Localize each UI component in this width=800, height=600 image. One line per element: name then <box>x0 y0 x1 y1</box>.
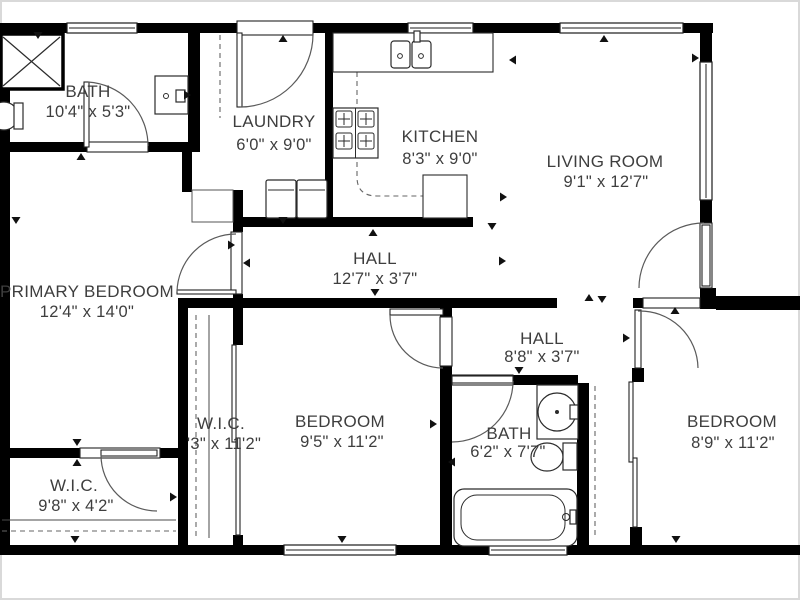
wall-segment <box>0 545 284 555</box>
wall-segment <box>0 448 80 458</box>
marker-icon <box>73 439 82 446</box>
window-icon <box>700 62 712 200</box>
room-dims-bath-top: 10'4" x 5'3" <box>46 103 131 121</box>
floor-plan: BATH 10'4" x 5'3" LAUNDRY 6'0" x 9'0" KI… <box>0 0 800 600</box>
wall-segment <box>182 152 192 192</box>
wall-segment <box>513 375 578 385</box>
wall-segment <box>700 288 716 309</box>
room-label-bath-top: BATH <box>65 82 110 101</box>
marker-icon <box>170 493 177 502</box>
wall-segment <box>0 23 67 33</box>
marker-icon <box>338 536 347 543</box>
wall-segment <box>700 23 712 62</box>
room-dims-wic-center: '3" x 11'2" <box>187 435 261 453</box>
floor-plan-drawing: BATH 10'4" x 5'3" LAUNDRY 6'0" x 9'0" KI… <box>0 0 800 600</box>
washer-icon <box>266 180 296 218</box>
counter-icon <box>423 175 467 218</box>
wall-segment <box>630 527 642 545</box>
toilet-icon <box>0 102 23 130</box>
window-icon <box>284 545 396 555</box>
wall-segment <box>233 535 243 545</box>
wall-segment <box>567 545 800 555</box>
wall-segment <box>233 190 243 232</box>
marker-icon <box>499 257 506 266</box>
marker-icon <box>672 536 681 543</box>
marker-icon <box>623 334 630 343</box>
room-dims-laundry: 6'0" x 9'0" <box>236 136 311 154</box>
room-label-bedroom-center: BEDROOM <box>295 412 385 431</box>
window-icon <box>67 23 137 33</box>
wall-segment <box>633 298 643 308</box>
wall-segment <box>188 33 200 152</box>
wall-segment <box>178 298 557 308</box>
marker-icon <box>371 289 380 296</box>
shower-icon <box>1 34 63 89</box>
wall-segment <box>137 23 237 33</box>
room-label-kitchen: KITCHEN <box>402 127 479 146</box>
door-icon <box>177 232 242 294</box>
wall-segment <box>440 366 452 545</box>
wall-segment <box>473 23 560 33</box>
room-dims-bath-center: 6'2" x 7'7" <box>470 443 545 461</box>
marker-icon <box>243 259 250 268</box>
room-dims-living-room: 9'1" x 12'7" <box>564 173 649 191</box>
room-label-hall-rear: HALL <box>520 329 564 348</box>
marker-icon <box>509 56 516 65</box>
room-label-bedroom-right: BEDROOM <box>687 412 777 431</box>
wall-segment <box>178 308 188 545</box>
room-label-laundry: LAUNDRY <box>232 112 315 131</box>
wall-segment <box>700 200 712 223</box>
marker-icon <box>600 35 609 42</box>
marker-icon <box>369 229 378 236</box>
dryer-icon <box>297 180 327 218</box>
door-icon <box>390 309 452 368</box>
room-dims-bedroom-right: 8'9" x 11'2" <box>691 434 775 452</box>
marker-icon <box>598 296 607 303</box>
room-dims-hall-main: 12'7" x 3'7" <box>333 270 418 288</box>
marker-icon <box>73 459 82 466</box>
wall-segment <box>0 142 87 152</box>
wall-segment <box>313 23 408 33</box>
wall-segment <box>577 383 589 545</box>
sliding-door-icon <box>629 382 637 527</box>
room-label-hall-main: HALL <box>353 249 397 268</box>
marker-icon <box>12 217 21 224</box>
wall-segment <box>233 308 243 345</box>
wall-segment <box>716 296 800 310</box>
room-dims-bedroom-center: 9'5" x 11'2" <box>300 433 384 451</box>
bathtub-icon <box>454 489 577 546</box>
stove-icon <box>333 108 378 158</box>
door-icon <box>237 21 313 107</box>
marker-icon <box>515 367 524 374</box>
marker-icon <box>279 35 288 42</box>
marker-icon <box>71 536 80 543</box>
room-dims-hall-rear: 8'8" x 3'7" <box>504 348 579 366</box>
room-label-wic-center: W.I.C. <box>197 414 245 433</box>
door-icon <box>639 223 712 288</box>
window-icon <box>560 23 683 33</box>
laundry-nook <box>192 190 233 222</box>
marker-icon <box>500 193 507 202</box>
marker-icon <box>77 153 86 160</box>
wall-segment <box>160 448 188 458</box>
door-icon <box>635 298 700 368</box>
marker-icon <box>585 294 594 301</box>
room-label-wic-left: W.I.C. <box>50 476 98 495</box>
marker-icon <box>488 223 497 230</box>
marker-icon <box>430 420 437 429</box>
sink-icon <box>155 76 188 114</box>
room-dims-primary-bedroom: 12'4" x 14'0" <box>40 303 134 321</box>
room-label-primary-bedroom: PRIMARY BEDROOM <box>0 282 174 301</box>
room-label-living-room: LIVING ROOM <box>547 152 664 171</box>
sink-icon <box>537 385 578 439</box>
room-dims-kitchen: 8'3" x 9'0" <box>402 150 477 168</box>
room-dims-wic-left: 9'8" x 4'2" <box>38 497 113 515</box>
room-label-bath-center: BATH <box>486 424 531 443</box>
wall-segment <box>632 368 644 382</box>
marker-icon <box>692 54 699 63</box>
